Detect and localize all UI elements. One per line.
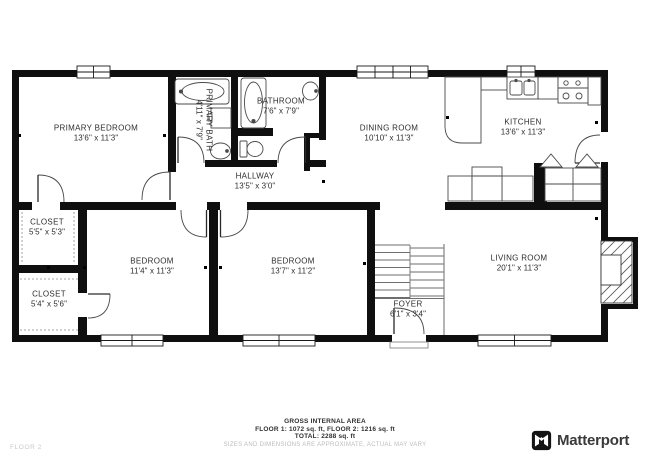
- room-dims: 4'11" x 7'9": [195, 89, 205, 152]
- window-living-room: [478, 335, 551, 346]
- room-dims: 13'6" x 11'3": [501, 127, 546, 137]
- room-label-kitchen: KITCHEN 13'6" x 11'3": [501, 118, 546, 137]
- kitchen-sink: [507, 77, 538, 99]
- room-label-primary-bedroom: PRIMARY BEDROOM 13'6" x 11'3": [54, 124, 138, 143]
- sink-primary-bath: [211, 143, 231, 159]
- matterport-logo: Matterport: [531, 430, 629, 451]
- room-name: BEDROOM: [271, 257, 316, 267]
- room-label-bedroom-1: BEDROOM 11'4" x 11'3": [130, 257, 174, 276]
- window-dining-right: [393, 66, 428, 78]
- floor-plan-page: PRIMARY BEDROOM 13'6" x 11'3" PRIMARY BA…: [0, 0, 650, 460]
- walls-group: [12, 70, 638, 342]
- room-name: BATHROOM: [257, 97, 305, 107]
- room-name: FOYER: [390, 300, 426, 310]
- toilet: [240, 141, 263, 157]
- room-dims: 7'6" x 7'9": [257, 106, 305, 116]
- room-dims: 13'7" x 11'2": [271, 266, 316, 276]
- room-dims: 13'5" x 3'0": [235, 181, 276, 191]
- room-name: DINING ROOM: [360, 124, 418, 134]
- room-label-bedroom-2: BEDROOM 13'7" x 11'2": [271, 257, 316, 276]
- room-name: PRIMARY BEDROOM: [54, 124, 138, 134]
- room-label-dining-room: DINING ROOM 10'10" x 11'3": [360, 124, 418, 143]
- dining-sideboard: [448, 167, 533, 201]
- room-name: CLOSET: [29, 218, 65, 228]
- room-dims: 20'1" x 11'3": [491, 263, 548, 273]
- matterport-m-icon: [531, 430, 552, 451]
- floor-plan-drawing: [0, 0, 650, 460]
- room-name: PRIMARY BATH: [204, 89, 214, 152]
- kitchen-island-cabinets: [545, 168, 601, 201]
- door-primary-bedroom: [142, 172, 170, 200]
- room-name: LIVING ROOM: [491, 254, 548, 264]
- window-bedroom-2: [243, 335, 315, 346]
- stove: [558, 77, 588, 103]
- door-bathroom: [278, 137, 306, 163]
- room-dims: 13'6" x 11'3": [54, 133, 138, 143]
- room-label-primary-bath: PRIMARY BATH 4'11" x 7'9": [195, 89, 214, 152]
- room-label-bathroom: BATHROOM 7'6" x 7'9": [257, 97, 305, 116]
- gross-internal-area-title: GROSS INTERNAL AREA: [0, 418, 650, 426]
- window-bedroom-1: [101, 335, 163, 346]
- brand-wordmark: Matterport: [557, 432, 629, 449]
- window-dining-left: [357, 66, 393, 78]
- door-closet-1: [38, 175, 64, 202]
- floor-number-label: FLOOR 2: [10, 444, 42, 451]
- room-label-living-room: LIVING ROOM 20'1" x 11'3": [491, 254, 548, 273]
- door-bedroom-2: [221, 210, 249, 237]
- door-closet-2: [88, 294, 110, 318]
- room-name: HALLWAY: [235, 172, 276, 182]
- room-dims: 5'5" x 5'3": [29, 227, 65, 237]
- chair-icons: [540, 154, 598, 167]
- fixtures-group: [175, 77, 640, 316]
- room-dims: 5'4" x 5'6": [31, 299, 67, 309]
- window-kitchen: [507, 66, 535, 78]
- staircase: [375, 244, 444, 335]
- room-dims: 6'1" x 3'4": [390, 309, 426, 319]
- door-bedroom-1: [181, 210, 207, 237]
- room-name: BEDROOM: [130, 257, 174, 267]
- room-label-hallway: HALLWAY 13'5" x 3'0": [235, 172, 276, 191]
- room-dims: 11'4" x 11'3": [130, 266, 174, 276]
- room-dims: 10'10" x 11'3": [360, 133, 418, 143]
- room-name: KITCHEN: [501, 118, 546, 128]
- room-label-closet-1: CLOSET 5'5" x 5'3": [29, 218, 65, 237]
- window-primary-bedroom: [77, 66, 110, 78]
- room-label-foyer: FOYER 6'1" x 3'4": [390, 300, 426, 319]
- room-label-closet-2: CLOSET 5'4" x 5'6": [31, 290, 67, 309]
- room-name: CLOSET: [31, 290, 67, 300]
